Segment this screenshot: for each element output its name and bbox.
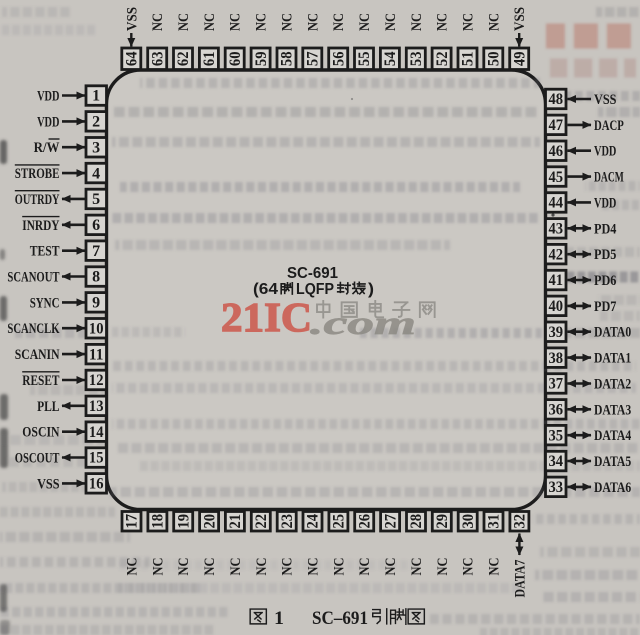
svg-text:DATA5: DATA5 xyxy=(594,454,631,470)
svg-text:31: 31 xyxy=(486,514,503,529)
svg-text:R/W: R/W xyxy=(34,140,60,156)
svg-text:21: 21 xyxy=(227,514,244,529)
svg-text:1: 1 xyxy=(274,608,284,629)
svg-text:46: 46 xyxy=(549,143,564,160)
svg-text:56: 56 xyxy=(330,51,347,66)
svg-text:48: 48 xyxy=(549,91,564,108)
svg-text:28: 28 xyxy=(408,514,425,529)
svg-text:SCANOUT: SCANOUT xyxy=(7,270,59,286)
svg-text:55: 55 xyxy=(356,51,373,66)
svg-text:44: 44 xyxy=(549,195,564,212)
svg-text:7: 7 xyxy=(92,243,100,260)
svg-text:58: 58 xyxy=(279,51,296,66)
svg-text:5: 5 xyxy=(92,191,100,208)
svg-text:OSCOUT: OSCOUT xyxy=(15,451,60,467)
svg-text:6: 6 xyxy=(92,217,100,234)
svg-text:VSS: VSS xyxy=(594,92,616,108)
svg-text:NC: NC xyxy=(409,558,425,576)
svg-text:PLL: PLL xyxy=(37,399,60,415)
svg-text:NC: NC xyxy=(383,13,399,31)
svg-text:DATA1: DATA1 xyxy=(594,351,631,367)
svg-text:NC: NC xyxy=(150,13,166,31)
svg-text:52: 52 xyxy=(434,51,451,66)
svg-text:NC: NC xyxy=(331,13,347,31)
svg-text:54: 54 xyxy=(382,51,399,66)
svg-text:DATA0: DATA0 xyxy=(594,325,631,341)
svg-text:VSS: VSS xyxy=(37,476,59,492)
svg-text:14: 14 xyxy=(89,424,104,441)
svg-text:22: 22 xyxy=(253,514,270,529)
svg-text:36: 36 xyxy=(549,402,564,419)
svg-text:64: 64 xyxy=(124,51,141,66)
svg-text:33: 33 xyxy=(549,479,564,496)
svg-text:9: 9 xyxy=(92,295,100,312)
svg-text:VDD: VDD xyxy=(594,144,616,160)
svg-text:40: 40 xyxy=(549,298,564,315)
svg-text:OSCIN: OSCIN xyxy=(22,425,60,441)
svg-text:NC: NC xyxy=(254,558,270,576)
svg-text:NC: NC xyxy=(228,13,244,31)
svg-text:29: 29 xyxy=(434,514,451,529)
svg-text:NC: NC xyxy=(409,13,425,31)
svg-text:NC: NC xyxy=(331,558,347,576)
svg-text:NC: NC xyxy=(176,558,192,576)
svg-text:34: 34 xyxy=(549,453,564,470)
svg-text:NC: NC xyxy=(461,558,477,576)
svg-text:SCANIN: SCANIN xyxy=(15,347,60,363)
svg-text:NC: NC xyxy=(228,558,244,576)
svg-text:NC: NC xyxy=(254,13,270,31)
svg-text:SYNC: SYNC xyxy=(30,295,60,311)
svg-text:NC: NC xyxy=(435,13,451,31)
svg-text:8: 8 xyxy=(92,269,100,286)
svg-text:20: 20 xyxy=(201,514,218,529)
svg-text:38: 38 xyxy=(549,350,564,367)
svg-text:13: 13 xyxy=(89,398,104,415)
svg-text:NC: NC xyxy=(280,13,296,31)
svg-text:SC–691: SC–691 xyxy=(312,608,368,629)
svg-text:53: 53 xyxy=(408,51,425,66)
svg-text:17: 17 xyxy=(124,514,141,529)
svg-text:41: 41 xyxy=(549,272,564,289)
svg-text:1: 1 xyxy=(92,88,100,105)
svg-text:25: 25 xyxy=(331,514,348,529)
svg-text:PD7: PD7 xyxy=(594,299,616,315)
svg-text:43: 43 xyxy=(549,221,564,238)
svg-text:24: 24 xyxy=(305,514,322,529)
svg-text:INRDY: INRDY xyxy=(22,218,60,234)
svg-text:62: 62 xyxy=(175,51,192,66)
svg-text:NC: NC xyxy=(486,13,502,31)
svg-text:60: 60 xyxy=(227,51,244,66)
svg-text:NC: NC xyxy=(306,558,322,576)
svg-text:15: 15 xyxy=(89,450,104,467)
svg-text:VSS: VSS xyxy=(124,7,140,31)
svg-text:27: 27 xyxy=(382,514,399,529)
svg-text:35: 35 xyxy=(549,427,564,444)
svg-text:NC: NC xyxy=(383,558,399,576)
svg-text:2: 2 xyxy=(92,114,100,131)
svg-text:10: 10 xyxy=(89,320,104,337)
svg-text:NC: NC xyxy=(357,13,373,31)
svg-text:PD5: PD5 xyxy=(594,247,616,263)
svg-text:NC: NC xyxy=(176,13,192,31)
svg-text:RESET: RESET xyxy=(22,373,59,389)
svg-text:32: 32 xyxy=(512,514,529,529)
svg-text:NC: NC xyxy=(357,558,373,576)
svg-text:NC: NC xyxy=(487,558,503,576)
svg-text:61: 61 xyxy=(201,51,218,66)
svg-text:NC: NC xyxy=(150,558,166,576)
svg-text:16: 16 xyxy=(89,476,104,493)
svg-text:DATA6: DATA6 xyxy=(594,480,631,496)
svg-text:PD4: PD4 xyxy=(594,221,616,237)
svg-text:57: 57 xyxy=(305,51,322,66)
svg-text:59: 59 xyxy=(253,51,270,66)
svg-text:): ) xyxy=(368,281,374,298)
svg-text:12: 12 xyxy=(89,372,104,389)
svg-text:OUTRDY: OUTRDY xyxy=(15,192,60,208)
svg-text:STROBE: STROBE xyxy=(15,166,60,182)
svg-text:VDD: VDD xyxy=(37,89,59,105)
svg-text:3: 3 xyxy=(92,139,100,156)
svg-text:23: 23 xyxy=(279,514,296,529)
svg-text:SCANCLK: SCANCLK xyxy=(7,321,60,337)
svg-text:NC: NC xyxy=(435,558,451,576)
svg-text:PD6: PD6 xyxy=(594,273,616,289)
svg-text:DATA2: DATA2 xyxy=(594,377,631,393)
svg-text:45: 45 xyxy=(549,169,564,186)
svg-text:4: 4 xyxy=(92,165,100,182)
svg-text:30: 30 xyxy=(460,514,477,529)
svg-text:63: 63 xyxy=(149,51,166,66)
svg-text:NC: NC xyxy=(125,558,141,576)
svg-text:NC: NC xyxy=(280,558,296,576)
svg-text:21IC: 21IC xyxy=(221,294,312,340)
svg-text:TEST: TEST xyxy=(30,244,60,260)
svg-text:VSS: VSS xyxy=(512,7,528,31)
svg-text:DATA7: DATA7 xyxy=(512,560,528,598)
svg-text:SC-691: SC-691 xyxy=(287,265,338,282)
svg-text:DACM: DACM xyxy=(594,170,624,186)
svg-text:11: 11 xyxy=(89,346,104,363)
svg-text:VDD: VDD xyxy=(37,114,59,130)
svg-text:DATA3: DATA3 xyxy=(594,402,631,418)
svg-text:37: 37 xyxy=(549,376,564,393)
svg-text:39: 39 xyxy=(549,324,564,341)
svg-text:NC: NC xyxy=(202,13,218,31)
svg-text:NC: NC xyxy=(461,13,477,31)
svg-text:NC: NC xyxy=(202,558,218,576)
svg-text:49: 49 xyxy=(511,51,528,66)
svg-text:18: 18 xyxy=(150,514,167,529)
svg-text:NC: NC xyxy=(305,13,321,31)
svg-text:DACP: DACP xyxy=(594,118,624,134)
svg-text:51: 51 xyxy=(460,51,477,66)
svg-text:47: 47 xyxy=(549,117,564,134)
svg-text:50: 50 xyxy=(486,51,503,66)
svg-text:19: 19 xyxy=(175,514,192,529)
svg-text:DATA4: DATA4 xyxy=(594,428,631,444)
svg-text:VDD: VDD xyxy=(594,195,616,211)
svg-text:42: 42 xyxy=(549,246,564,263)
svg-text:26: 26 xyxy=(356,514,373,529)
